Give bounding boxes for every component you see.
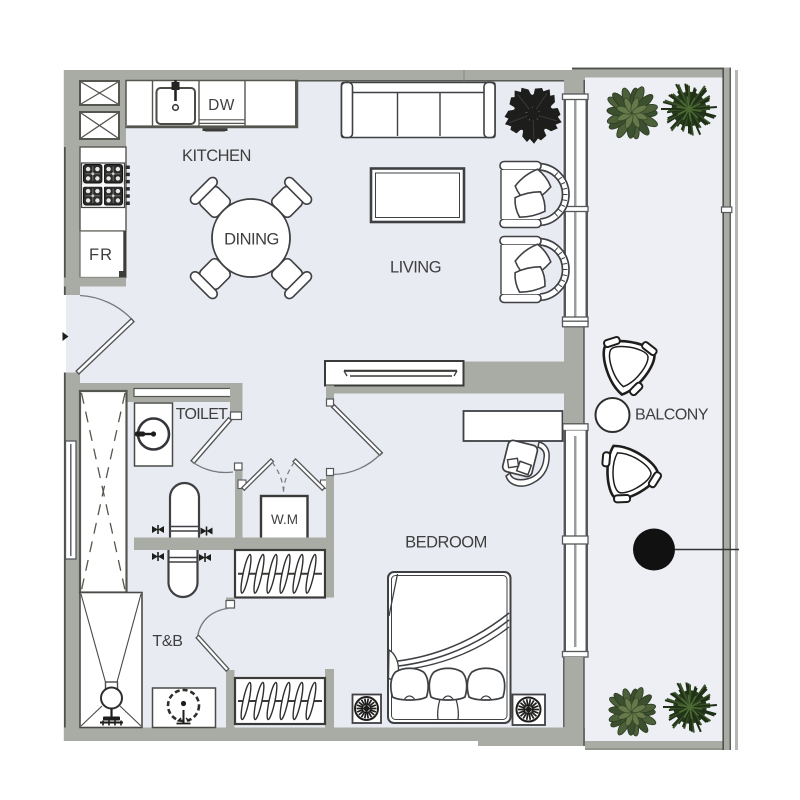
svg-text:LIVING: LIVING xyxy=(390,259,441,277)
svg-text:KITCHEN: KITCHEN xyxy=(182,147,251,165)
svg-text:W.M: W.M xyxy=(271,512,298,527)
svg-text:DW: DW xyxy=(208,97,235,114)
svg-text:TOILET: TOILET xyxy=(176,406,228,423)
svg-text:T&B: T&B xyxy=(152,633,182,650)
svg-text:BEDROOM: BEDROOM xyxy=(405,534,487,552)
svg-text:FR: FR xyxy=(89,246,113,264)
svg-text:DINING: DINING xyxy=(224,231,279,249)
svg-text:BALCONY: BALCONY xyxy=(635,407,709,424)
